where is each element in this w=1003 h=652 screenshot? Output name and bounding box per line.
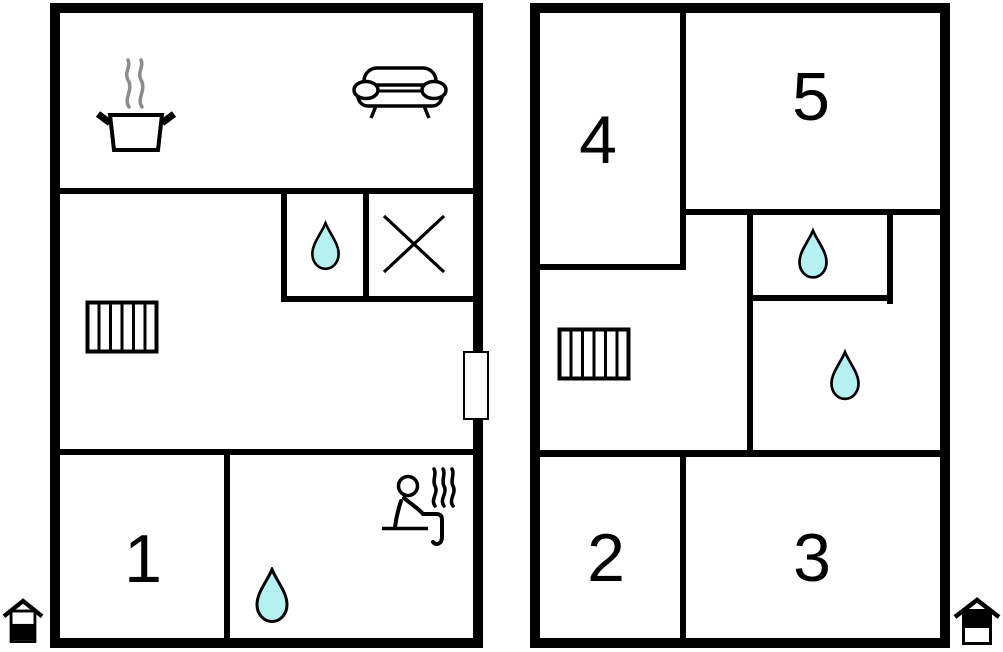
wall-segment (680, 209, 940, 215)
wall-segment (473, 3, 483, 648)
room-label-5: 5 (792, 58, 830, 136)
wall-segment (530, 3, 950, 13)
sofa-icon (350, 61, 450, 121)
water-drop-icon (308, 217, 343, 275)
wall-segment (363, 190, 369, 302)
wall-segment (680, 13, 686, 270)
wall-segment (50, 449, 483, 455)
water-drop-icon (795, 227, 831, 281)
wall-segment (530, 450, 950, 457)
room-label-4: 4 (579, 101, 617, 179)
upper-floor-house-icon (953, 597, 1001, 647)
floorplan-canvas: 1 (0, 0, 1003, 652)
wall-segment (224, 455, 230, 648)
wall-segment (530, 638, 950, 648)
wall-segment (50, 188, 483, 194)
ground-floor-house-icon (2, 598, 44, 646)
room-label-2: 2 (587, 519, 625, 597)
stairs-icon (557, 327, 631, 381)
wall-segment (887, 209, 893, 304)
wall-segment (50, 638, 483, 648)
room-label-1: 1 (124, 520, 162, 598)
water-drop-icon (252, 567, 292, 624)
wall-segment (680, 455, 686, 648)
cooking-pot-icon (95, 58, 177, 153)
upper-floor-plan: 4 5 2 3 (530, 3, 950, 648)
wall-segment (540, 264, 686, 270)
stairs-icon (85, 300, 159, 354)
ground-floor-plan: 1 (50, 3, 483, 648)
wall-segment (50, 3, 60, 648)
crossed-area-icon (382, 214, 446, 274)
wall-segment (530, 3, 540, 648)
wall-segment (940, 3, 950, 648)
room-label-3: 3 (793, 519, 831, 597)
wall-segment (281, 190, 287, 302)
sauna-icon (378, 465, 460, 557)
water-drop-icon (827, 348, 863, 403)
wall-segment (281, 296, 473, 302)
wall-segment (747, 295, 893, 301)
door-window-marker (463, 351, 489, 420)
wall-segment (50, 3, 483, 13)
wall-segment (747, 209, 753, 455)
